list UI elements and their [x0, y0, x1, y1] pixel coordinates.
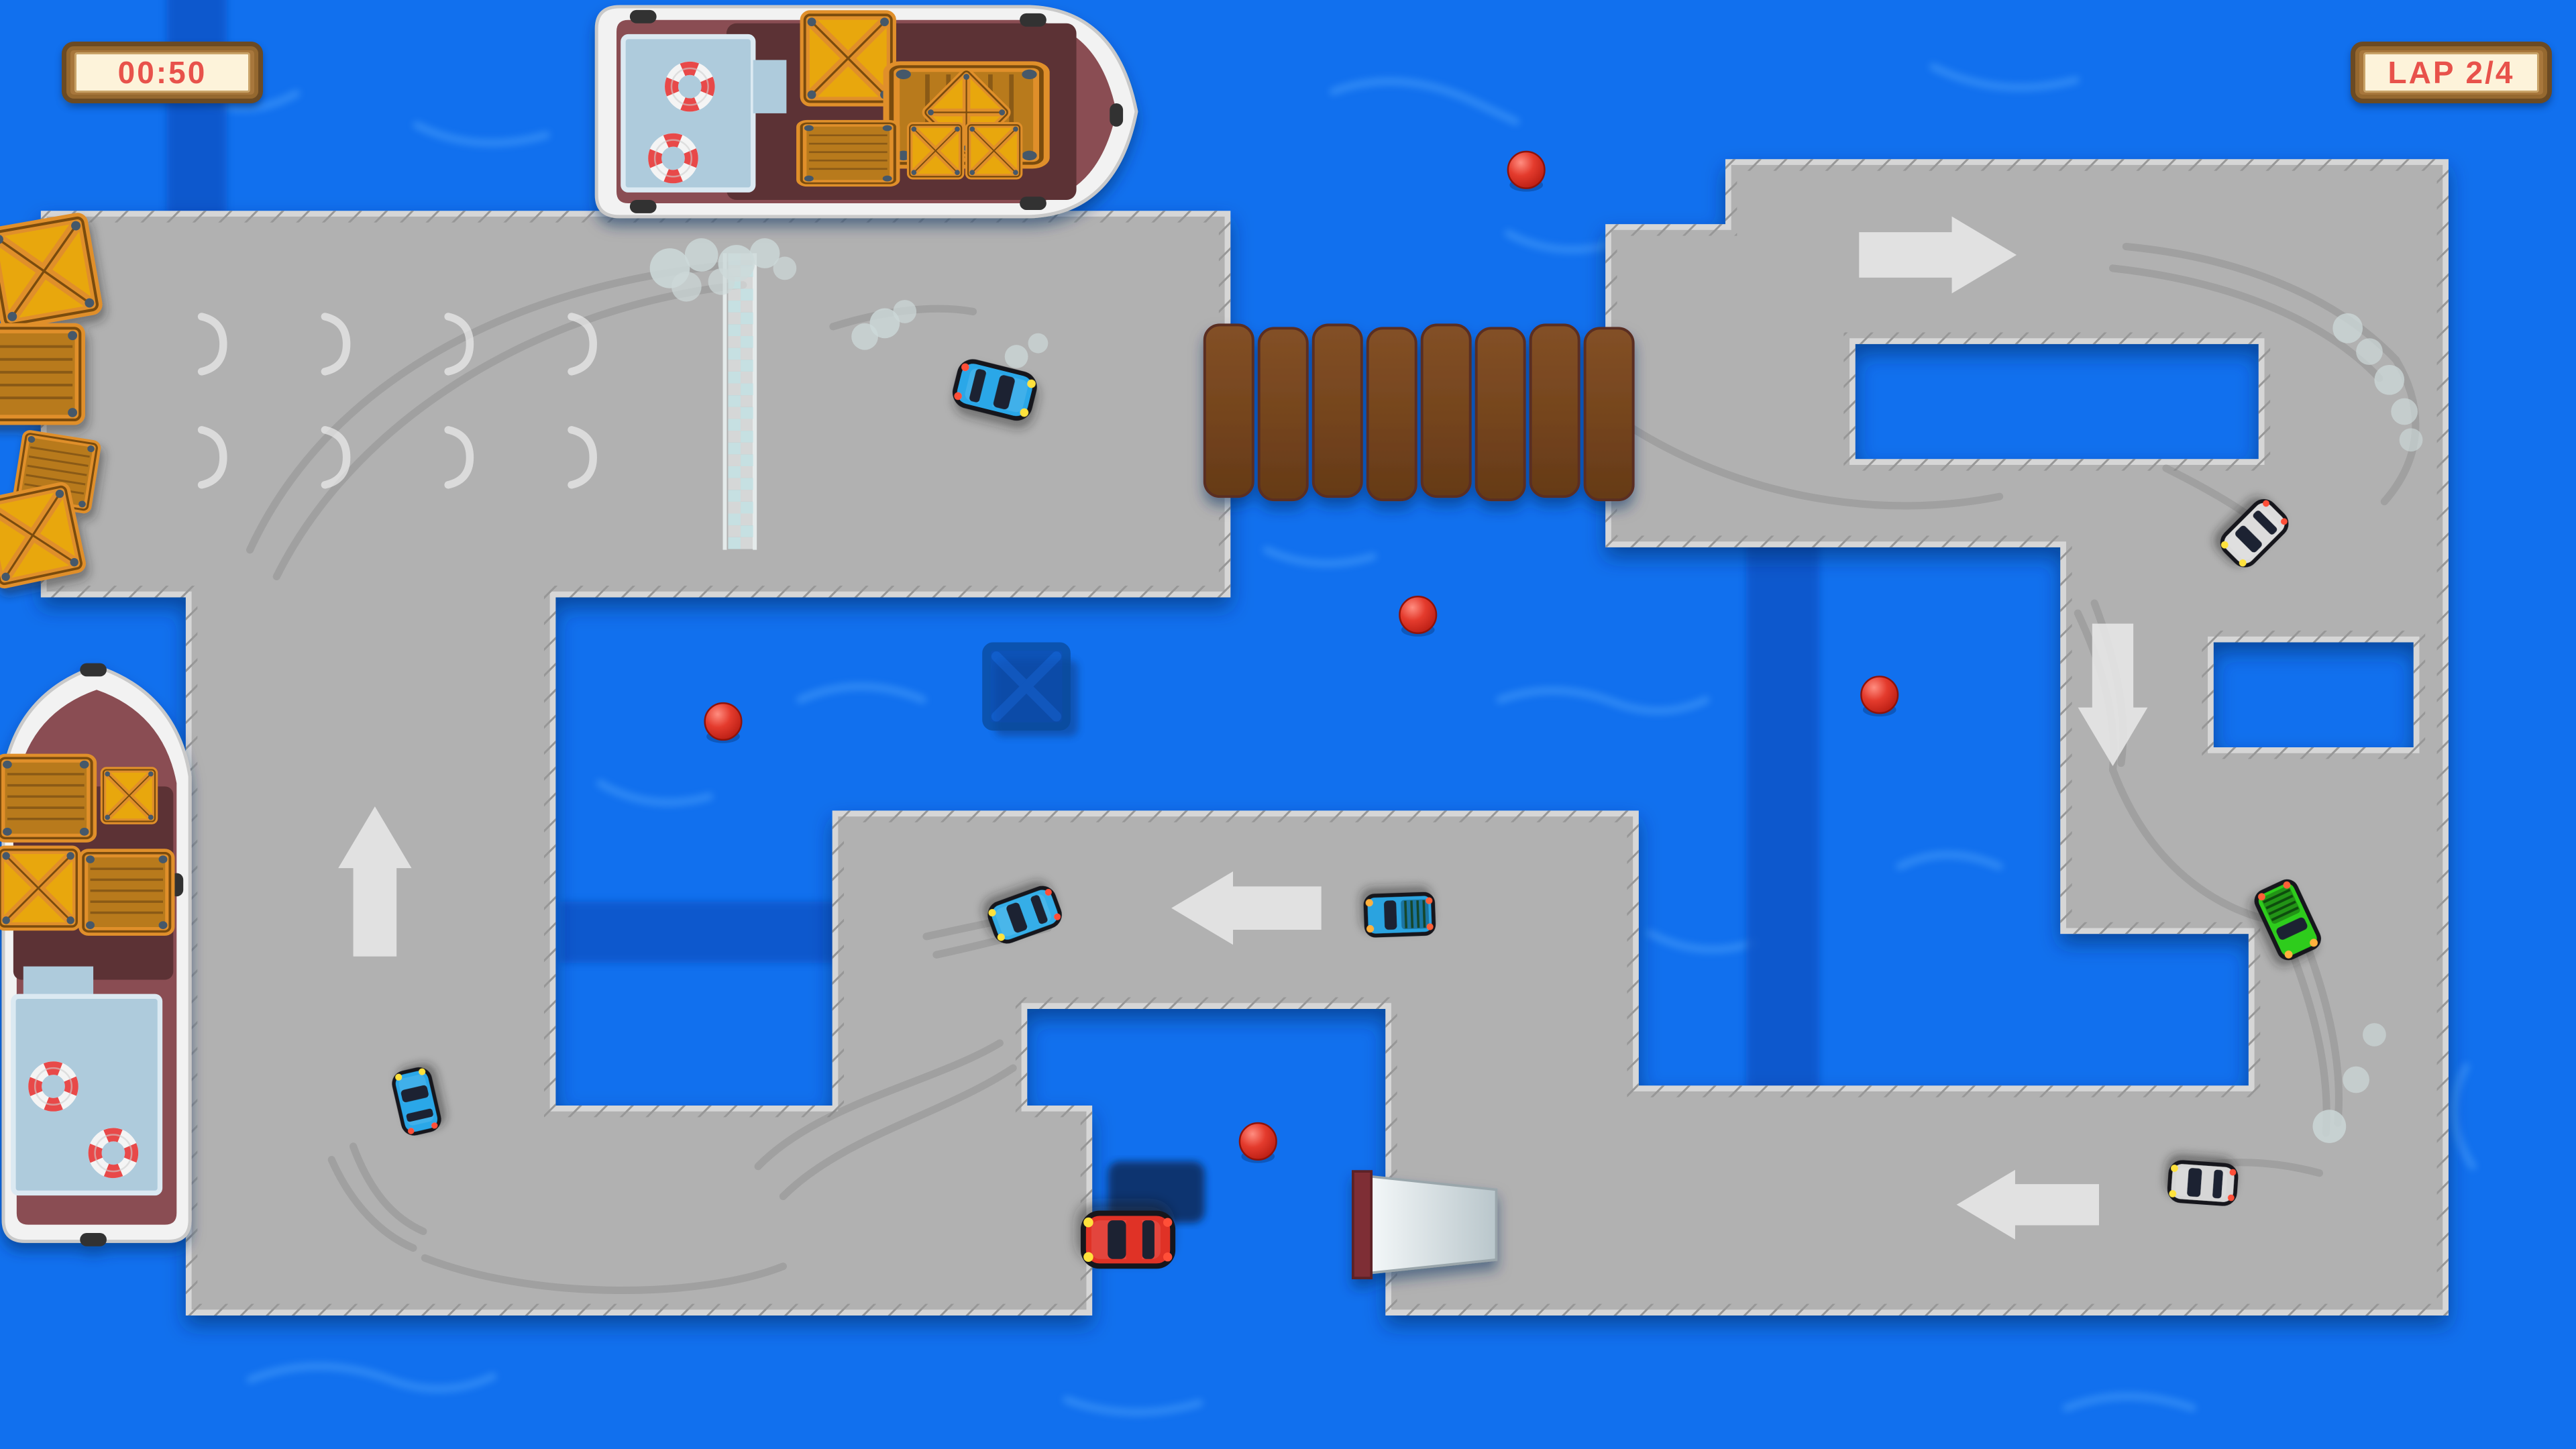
lap-badge: LAP 2/4	[2351, 42, 2552, 103]
bridge-plank	[1313, 325, 1362, 496]
timer-text: 00:50	[118, 54, 207, 91]
bridge-plank	[1259, 328, 1307, 500]
red-ball	[705, 703, 742, 743]
channel-right	[1746, 537, 1819, 1097]
crate-x-small	[910, 125, 961, 176]
red-ball	[1861, 676, 1898, 716]
crate-plank	[0, 758, 92, 838]
crate-x	[805, 15, 892, 101]
rival-blue-truck	[1365, 894, 1434, 936]
crate-x	[0, 217, 98, 325]
channel-top-left	[166, 0, 226, 223]
rival-gray-car-lower	[2169, 1161, 2237, 1205]
cargo-boat-left	[0, 663, 190, 1246]
timer-panel: 00:50	[74, 52, 250, 93]
sunken-red-car	[1083, 1214, 1173, 1267]
bridge-plank	[1422, 325, 1470, 496]
bridge-plank	[1205, 325, 1253, 496]
bridge-plank	[1368, 328, 1416, 500]
channel-left-horizontal	[560, 902, 847, 963]
finish-line	[724, 254, 755, 550]
game-screen[interactable]: 00:50 LAP 2/4	[0, 0, 2576, 1449]
crate-x	[0, 486, 82, 584]
crate-plank	[0, 328, 80, 420]
red-ball	[1399, 596, 1436, 637]
red-ball	[1240, 1123, 1277, 1163]
lap-panel: LAP 2/4	[2363, 52, 2539, 93]
crate-plank	[802, 123, 895, 183]
cargo-boat-top	[596, 7, 1136, 217]
jump-ramp	[1353, 1171, 1497, 1278]
boat-cabin-step	[753, 60, 787, 113]
crate-x-small	[968, 125, 1020, 176]
lap-text: LAP 2/4	[2388, 54, 2515, 91]
red-ball	[1508, 152, 1545, 192]
timer-badge: 00:50	[62, 42, 263, 103]
submerged-crate	[986, 647, 1078, 737]
crate-x-small	[103, 770, 155, 822]
crate-plank	[83, 853, 170, 932]
bridge-plank	[1477, 328, 1525, 500]
bridge-plank	[1585, 328, 1633, 500]
crate-x	[0, 850, 76, 926]
game-canvas[interactable]	[0, 0, 2576, 1449]
bridge-plank	[1531, 325, 1579, 496]
